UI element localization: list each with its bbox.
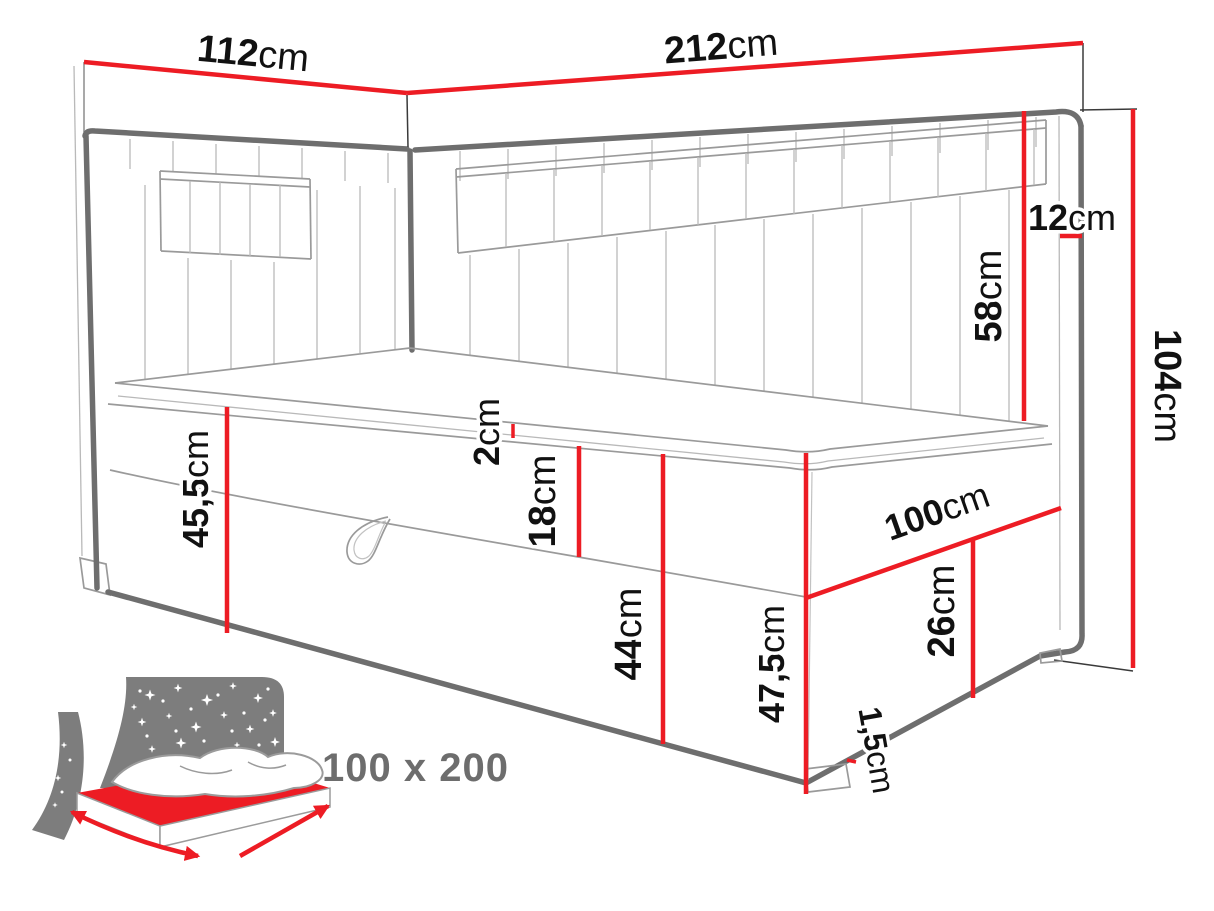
- back-headboard-tufting-top: [460, 117, 1036, 181]
- label-45-5cm: 45,5cm: [175, 430, 216, 548]
- side-headboard: [84, 62, 407, 588]
- handle: [347, 517, 390, 564]
- unit: cm: [859, 748, 902, 796]
- unit: cm: [751, 605, 792, 653]
- unit: cm: [1068, 197, 1116, 238]
- unit: cm: [726, 22, 780, 68]
- bed-size-label: 100 x 200: [322, 746, 509, 790]
- label-26cm: 26cm: [921, 565, 963, 658]
- front-right-corner-edge: [808, 472, 812, 780]
- value: 212: [663, 26, 730, 73]
- corner-post: [410, 151, 412, 350]
- unit: cm: [608, 588, 650, 639]
- value: 2: [466, 446, 507, 466]
- corner-seam: [407, 95, 408, 147]
- side-panel-lines: [145, 181, 395, 379]
- value: 112: [195, 28, 260, 76]
- dim-tick-1-5: [847, 760, 856, 762]
- mattress: [115, 348, 1048, 464]
- unit: cm: [175, 430, 216, 478]
- label-1-5cm: 1,5cm: [852, 704, 903, 796]
- value: 45,5: [175, 478, 216, 548]
- value: 47,5: [751, 653, 792, 723]
- value: 1,5: [852, 704, 895, 754]
- label-104cm: 104cm: [1146, 329, 1188, 443]
- back-headboard-tufting-low: [470, 190, 1009, 421]
- label-58cm: 58cm: [968, 250, 1010, 343]
- label-18cm: 18cm: [522, 455, 564, 548]
- value: 58: [968, 300, 1010, 342]
- dim-tick-104-top: [1080, 109, 1137, 110]
- bed-dimension-diagram: 112cm 212cm 12cm 58cm 104cm 2cm 18cm 45,…: [0, 0, 1214, 911]
- value: 26: [921, 615, 963, 657]
- label-47-5cm: 47,5cm: [751, 605, 792, 723]
- floor-line: [1054, 660, 1133, 671]
- left-back-edge: [74, 66, 82, 556]
- unit: cm: [968, 250, 1010, 301]
- diagram-svg: 112cm 212cm 12cm 58cm 104cm 2cm 18cm 45,…: [0, 0, 1214, 911]
- value: 104: [1146, 329, 1188, 392]
- value: 44: [608, 638, 650, 680]
- label-212cm: 212cm: [663, 22, 780, 73]
- unit: cm: [522, 455, 564, 506]
- label-44cm: 44cm: [608, 588, 650, 681]
- value: 12: [1028, 197, 1068, 238]
- unit: cm: [466, 398, 507, 446]
- back-band-lines: [506, 129, 1034, 247]
- value: 18: [522, 505, 564, 547]
- unit: cm: [1146, 392, 1188, 443]
- bed-size-icon: 100 x 200: [32, 677, 509, 856]
- label-12cm: 12cm: [1028, 197, 1116, 238]
- label-2cm: 2cm: [466, 398, 507, 466]
- side-headboard-panel: [160, 171, 311, 259]
- unit: cm: [921, 565, 963, 616]
- unit: cm: [256, 34, 310, 81]
